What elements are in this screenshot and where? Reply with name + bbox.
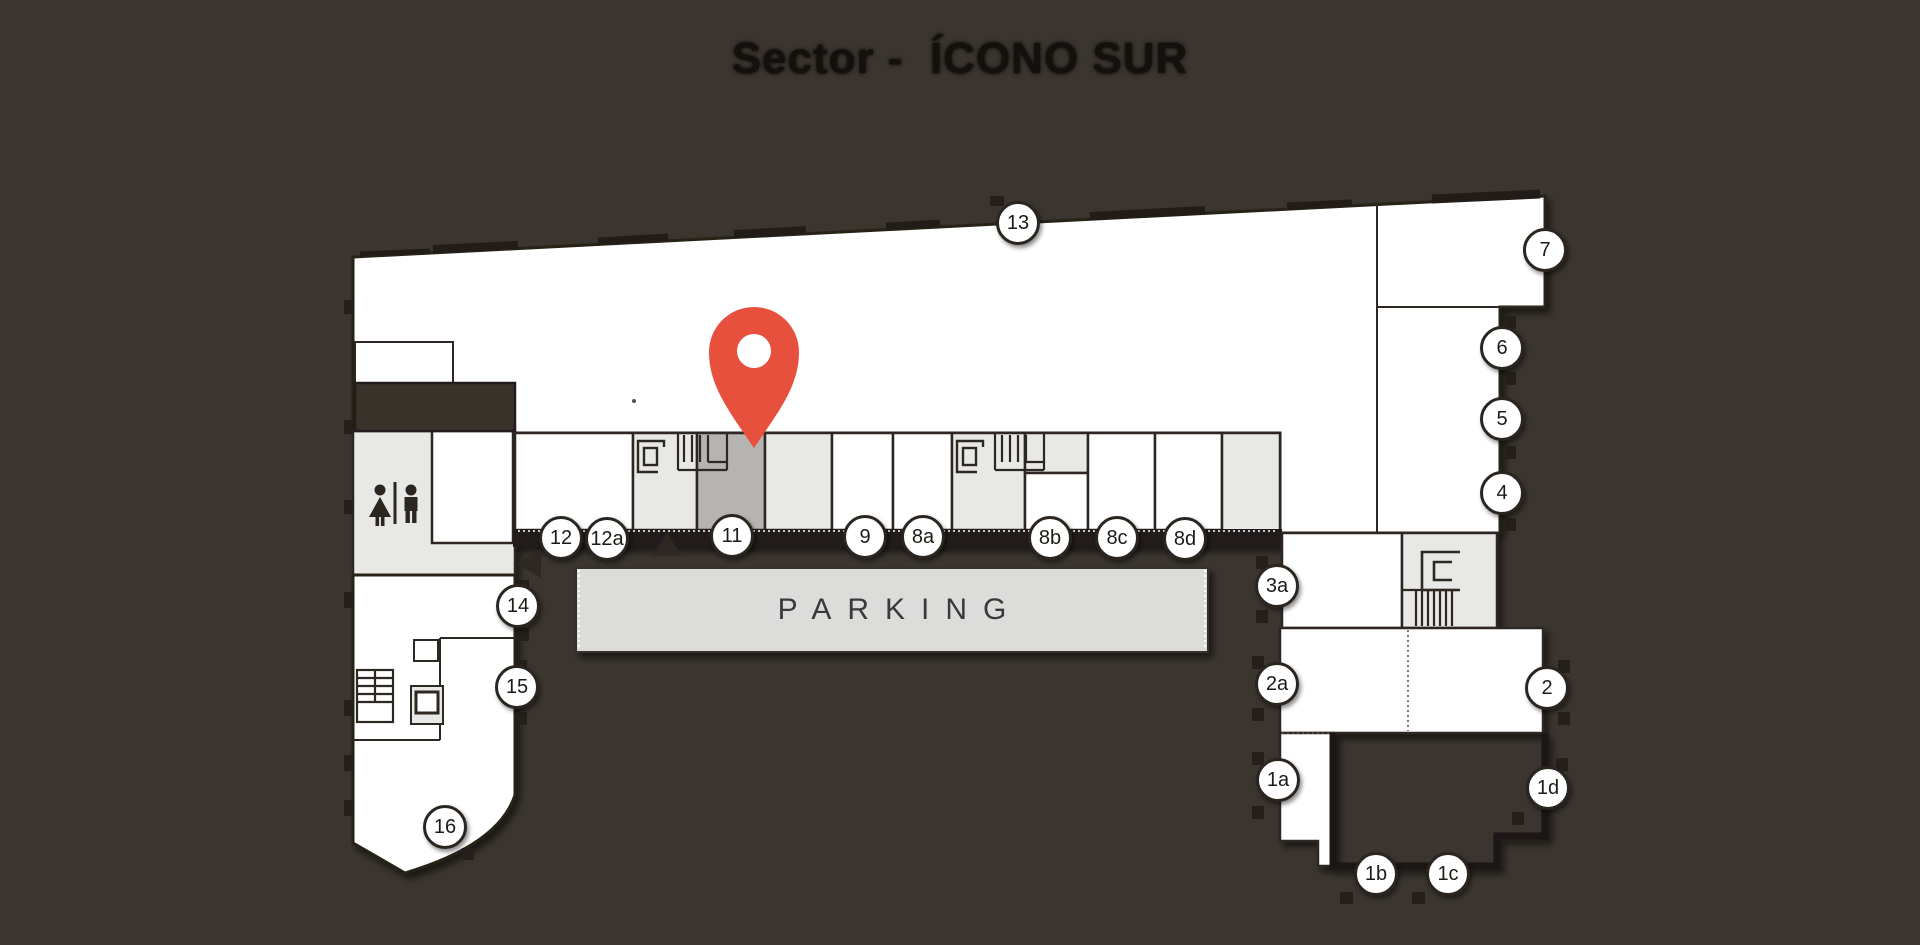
marker-label: 5 [1496, 409, 1507, 429]
floor-plan [0, 0, 1920, 945]
solid-block [355, 383, 515, 431]
map-dot [632, 399, 636, 403]
marker-8b[interactable]: 8b [1028, 516, 1072, 560]
marker-label: 1a [1267, 770, 1289, 790]
marker-4[interactable]: 4 [1480, 471, 1524, 515]
marker-2a[interactable]: 2a [1255, 662, 1299, 706]
marker-label: 8c [1106, 528, 1127, 548]
marker-3a[interactable]: 3a [1255, 564, 1299, 608]
mall-map-stage: Sector - ÍCONO SUR [0, 0, 1920, 945]
marker-label: 8a [912, 527, 934, 547]
marker-label: 1b [1365, 864, 1387, 884]
marker-label: 3a [1266, 576, 1288, 596]
marker-label: 12a [590, 529, 623, 549]
parking-label: PARKING [576, 568, 1208, 652]
marker-1c[interactable]: 1c [1426, 852, 1470, 896]
marker-label: 15 [506, 677, 528, 697]
marker-2[interactable]: 2 [1525, 666, 1569, 710]
stairs-icon [357, 670, 393, 722]
marker-16[interactable]: 16 [423, 805, 467, 849]
marker-1d[interactable]: 1d [1526, 766, 1570, 810]
marker-label: 2a [1266, 674, 1288, 694]
marker-8a[interactable]: 8a [901, 515, 945, 559]
marker-label: 14 [507, 596, 529, 616]
marker-label: 11 [722, 526, 743, 546]
marker-12[interactable]: 12 [539, 516, 583, 560]
marker-label: 1d [1537, 778, 1559, 798]
marker-label: 8b [1039, 528, 1061, 548]
marker-label: 12 [550, 528, 572, 548]
marker-label: 7 [1539, 240, 1550, 260]
marker-14[interactable]: 14 [496, 584, 540, 628]
marker-label: 8d [1174, 529, 1196, 549]
marker-11[interactable]: 11 [710, 514, 754, 558]
marker-label: 13 [1007, 213, 1029, 233]
perimeter-wall [1333, 733, 1545, 866]
marker-1b[interactable]: 1b [1354, 852, 1398, 896]
building-outline [353, 196, 1545, 873]
marker-1a[interactable]: 1a [1256, 758, 1300, 802]
marker-label: 16 [434, 817, 456, 837]
marker-13[interactable]: 13 [996, 201, 1040, 245]
marker-8d[interactable]: 8d [1163, 517, 1207, 561]
marker-label: 9 [859, 527, 870, 547]
marker-8c[interactable]: 8c [1095, 516, 1139, 560]
marker-label: 2 [1541, 678, 1552, 698]
marker-15[interactable]: 15 [495, 665, 539, 709]
marker-label: 6 [1496, 338, 1507, 358]
marker-label: 4 [1496, 483, 1507, 503]
marker-label: 1c [1437, 864, 1458, 884]
entrance-arrow-left-icon [516, 549, 541, 578]
marker-5[interactable]: 5 [1480, 397, 1524, 441]
marker-7[interactable]: 7 [1523, 228, 1567, 272]
marker-6[interactable]: 6 [1480, 326, 1524, 370]
marker-12a[interactable]: 12a [585, 517, 629, 561]
marker-9[interactable]: 9 [843, 515, 887, 559]
